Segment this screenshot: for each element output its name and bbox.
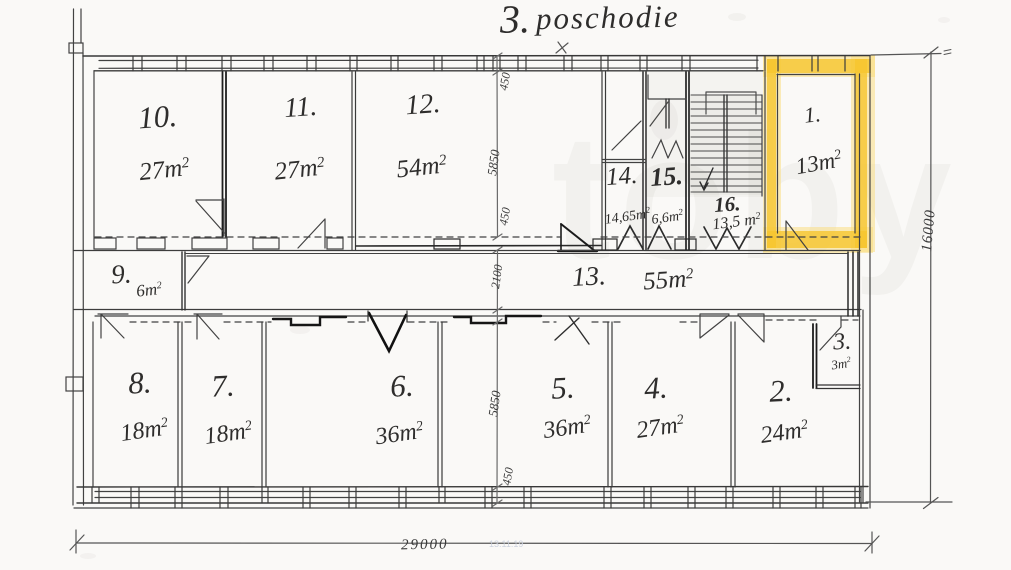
svg-text:29000: 29000 [401, 537, 449, 554]
svg-text:4.: 4. [643, 370, 668, 406]
svg-text:poschodie: poschodie [534, 0, 680, 36]
svg-text:3.: 3. [499, 0, 531, 42]
svg-text:10.: 10. [137, 98, 178, 136]
svg-text:2.: 2. [768, 373, 793, 409]
svg-text:14.: 14. [605, 162, 638, 191]
svg-text:3.: 3. [831, 329, 851, 356]
svg-text:5.: 5. [550, 370, 575, 406]
svg-text:13.11.19: 13.11.19 [489, 539, 523, 549]
svg-text:27m2: 27m2 [273, 153, 327, 185]
svg-text:1.: 1. [803, 101, 822, 128]
svg-text:7.: 7. [210, 368, 235, 404]
svg-text:15.: 15. [649, 161, 683, 192]
svg-text:13.: 13. [571, 260, 606, 292]
svg-text:9.: 9. [110, 258, 132, 289]
svg-text:6.: 6. [389, 368, 414, 404]
svg-text:11.: 11. [283, 91, 318, 124]
svg-text:27m2: 27m2 [138, 154, 192, 186]
svg-text:54m2: 54m2 [395, 151, 449, 183]
svg-text:8.: 8. [127, 364, 152, 400]
svg-text:12.: 12. [404, 88, 441, 121]
